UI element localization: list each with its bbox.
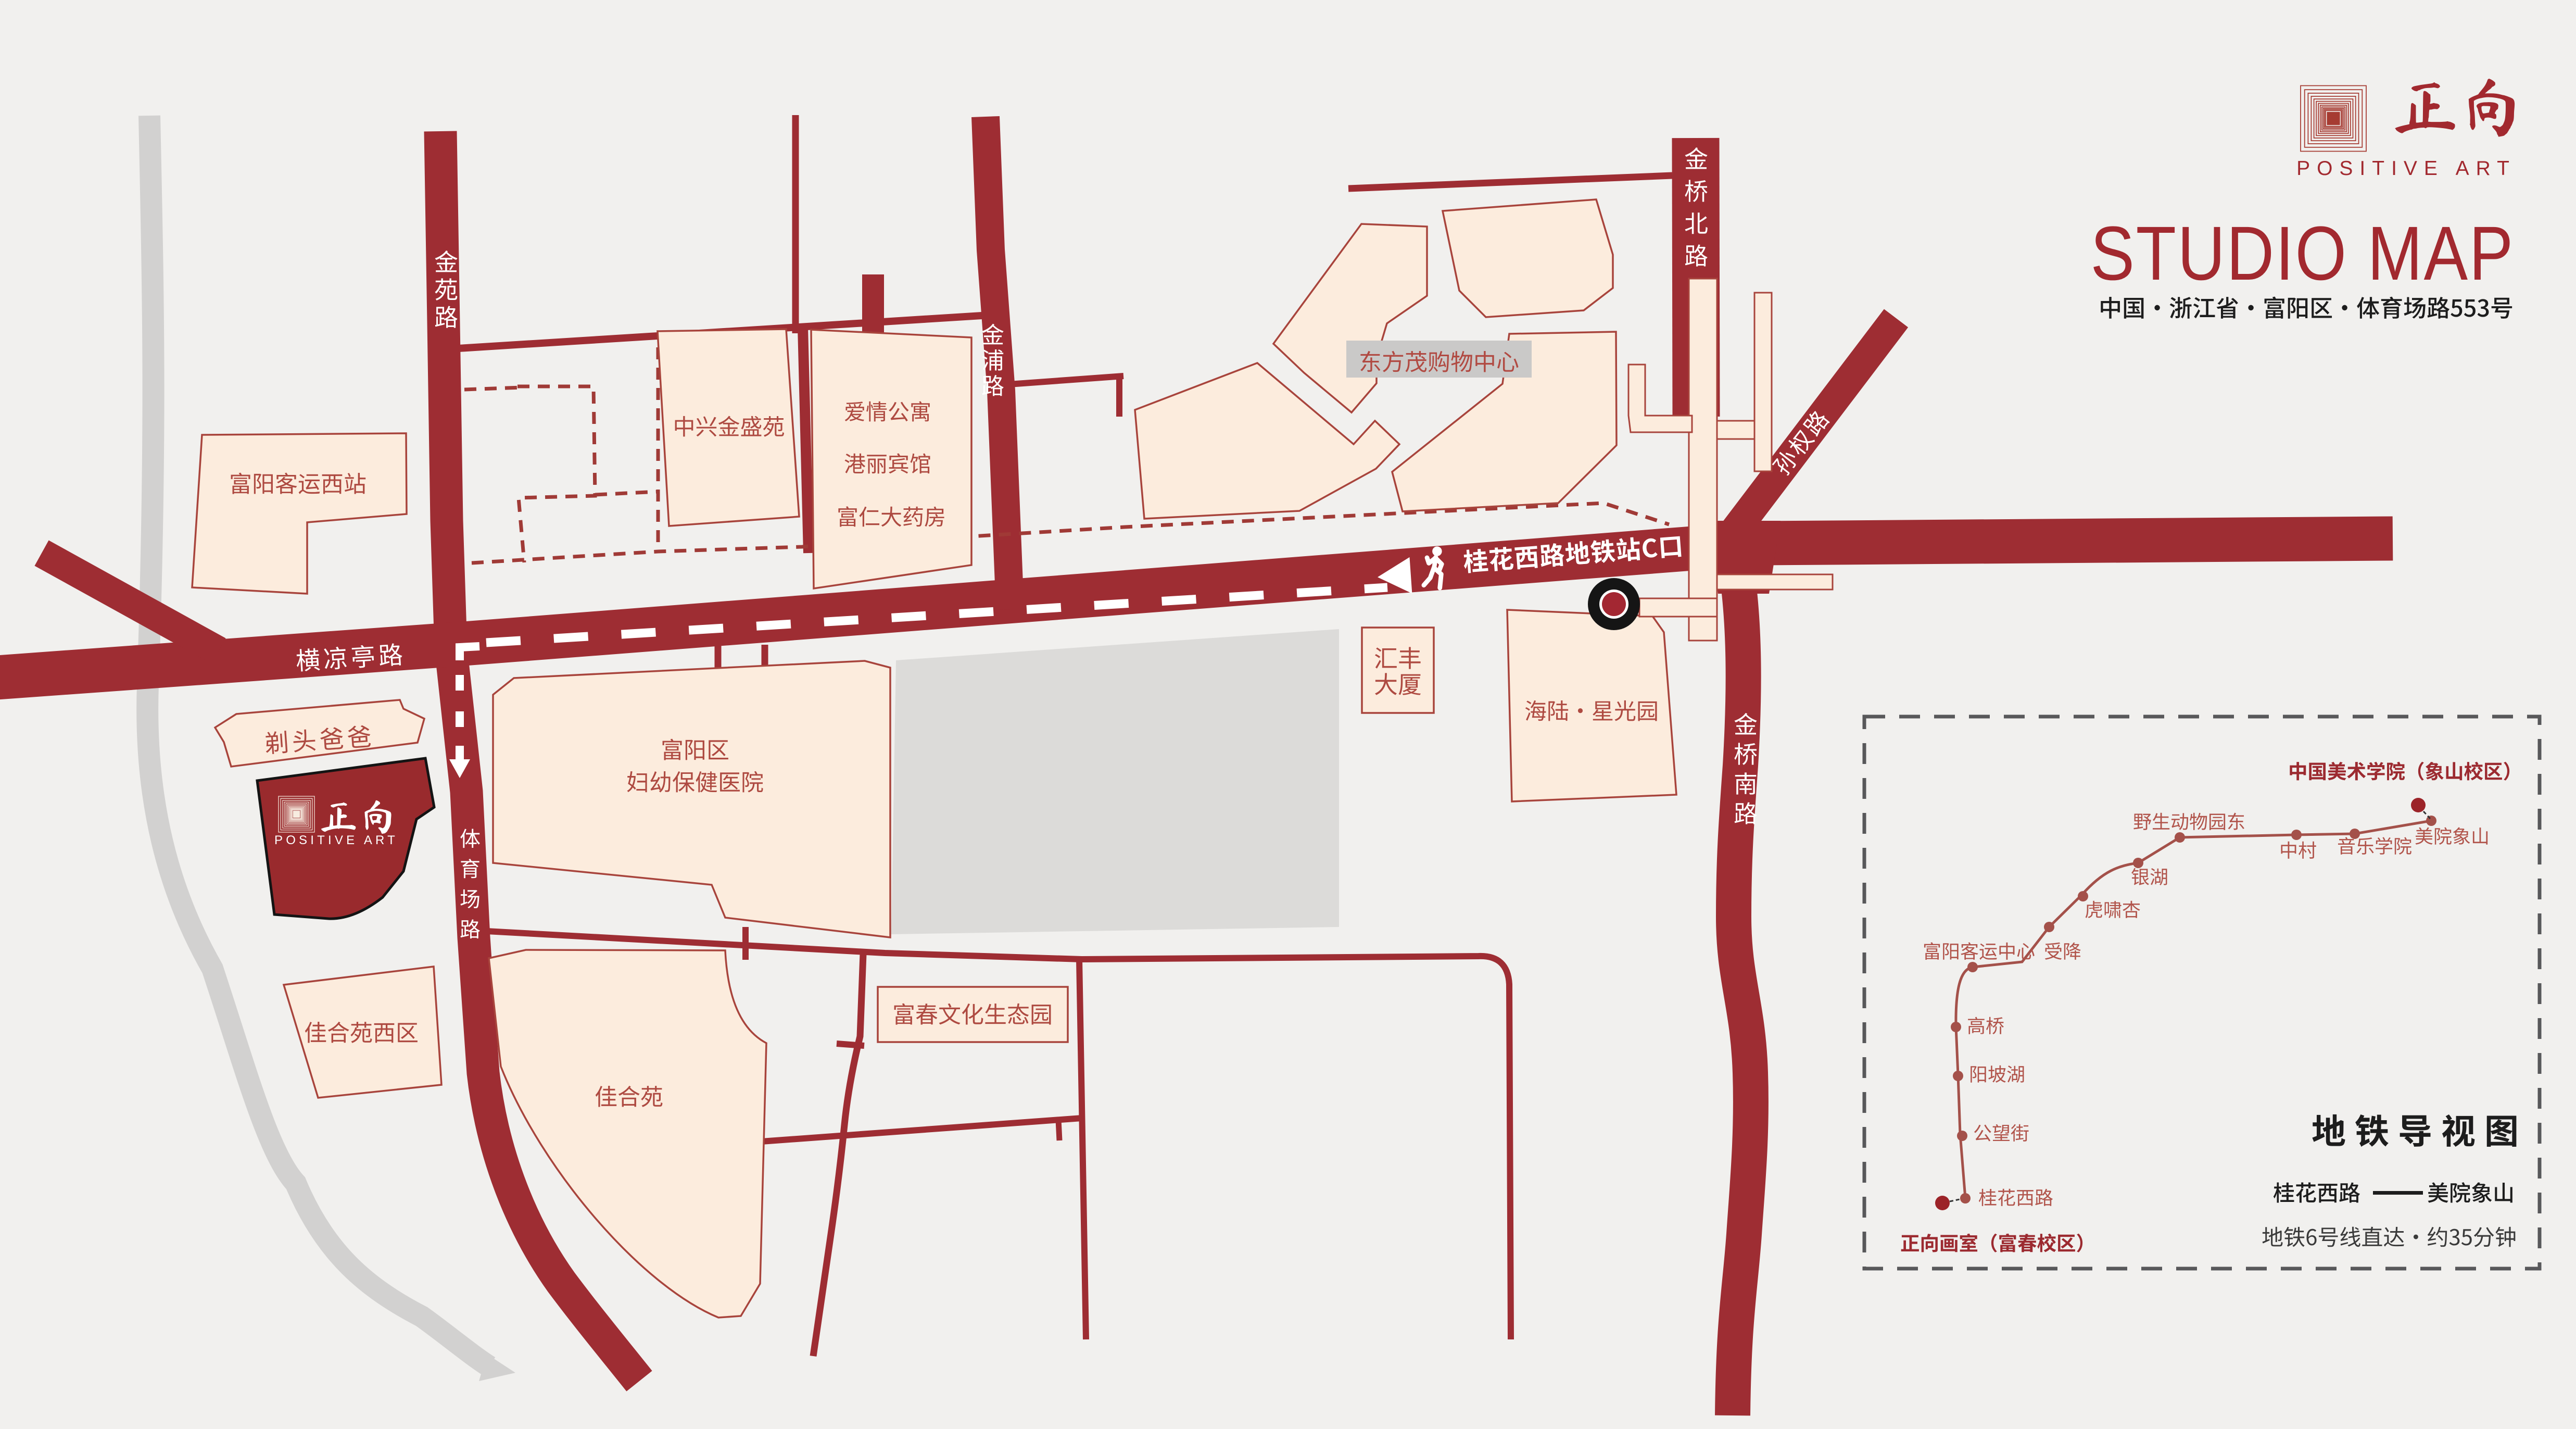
svg-text:POSITIVE ART: POSITIVE ART <box>2296 157 2516 180</box>
svg-text:STUDIO MAP: STUDIO MAP <box>2091 211 2515 296</box>
svg-text:POSITIVE ART: POSITIVE ART <box>274 833 398 847</box>
